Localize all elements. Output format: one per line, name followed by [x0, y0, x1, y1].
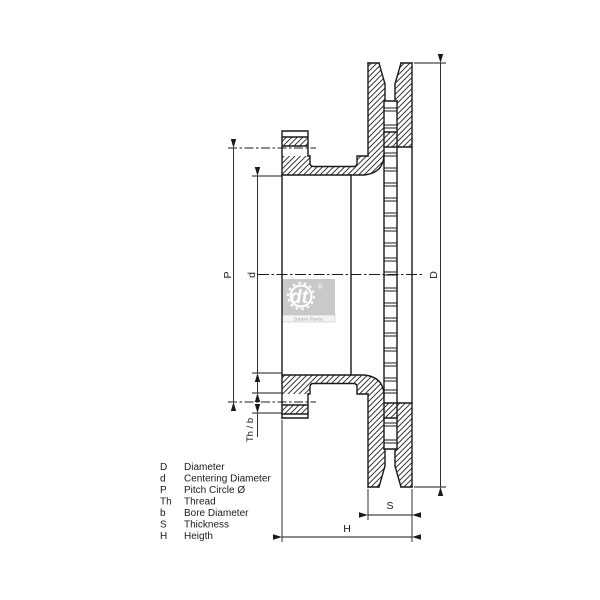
legend-symbol: H [160, 531, 167, 542]
legend-symbol: D [160, 462, 167, 473]
registered-mark: ® [318, 284, 323, 291]
legend-symbol: S [160, 520, 167, 531]
legend-description: Bore Diameter [184, 508, 249, 519]
dimension-label-d: d [246, 272, 258, 278]
legend-symbol: d [160, 474, 166, 485]
legend-description: Diameter [184, 462, 225, 473]
legend-description: Pitch Circle Ø [184, 485, 245, 496]
dimension-D: D [414, 63, 446, 487]
dimension-H: H [282, 420, 412, 542]
vent-channel-rungs [384, 108, 397, 443]
dimension-label-S: S [386, 500, 393, 512]
legend-description: Thickness [184, 520, 229, 531]
legend-symbol: Th [160, 497, 172, 508]
legend: D Diameter d Centering Diameter P Pitch … [160, 462, 271, 542]
legend-symbol: P [160, 485, 167, 496]
legend-description: Heigth [184, 531, 213, 542]
brake-disc-technical-drawing: dt ® Spare Parts [0, 0, 600, 600]
dimension-label-D: D [428, 271, 440, 279]
dimension-th-b: Th / b [245, 377, 282, 442]
dt-logo: dt ® Spare Parts [282, 279, 335, 322]
dimension-label-P: P [222, 271, 234, 278]
dimension-S: S [368, 489, 412, 542]
dimension-label-th-b: Th / b [245, 418, 256, 442]
legend-description: Thread [184, 497, 216, 508]
legend-symbol: b [160, 508, 166, 519]
dimension-P: P [222, 148, 234, 402]
dt-logo-text: dt [290, 287, 309, 308]
dimension-label-H: H [343, 523, 351, 535]
dt-logo-caption: Spare Parts [294, 316, 323, 321]
legend-description: Centering Diameter [184, 474, 271, 485]
technical-drawing-page: dt ® Spare Parts [0, 0, 600, 600]
flange-recesses [310, 155, 357, 395]
